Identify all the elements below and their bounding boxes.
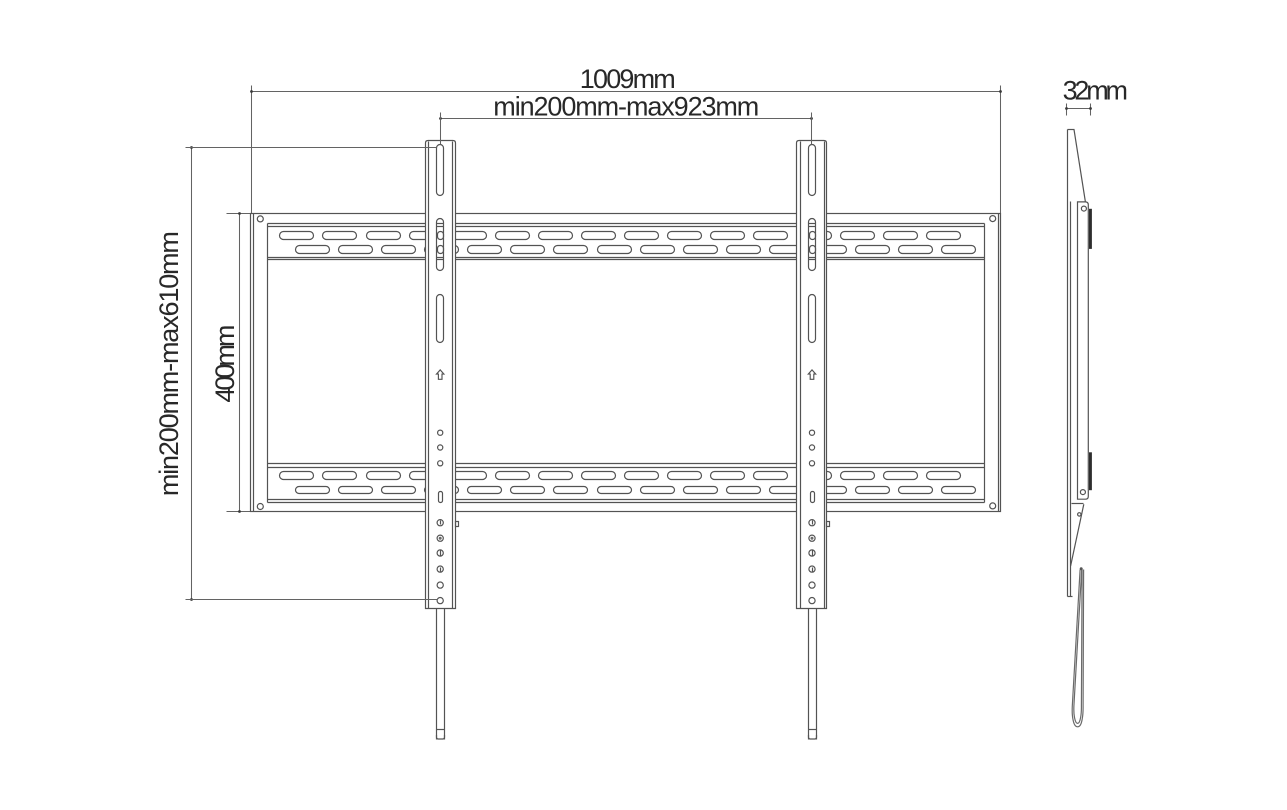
svg-text:min200mm-max610mm: min200mm-max610mm: [154, 231, 184, 496]
svg-text:32mm: 32mm: [1063, 76, 1128, 106]
svg-text:400mm: 400mm: [210, 325, 240, 403]
svg-text:1009mm: 1009mm: [580, 64, 676, 94]
svg-text:min200mm-max923mm: min200mm-max923mm: [493, 91, 759, 121]
